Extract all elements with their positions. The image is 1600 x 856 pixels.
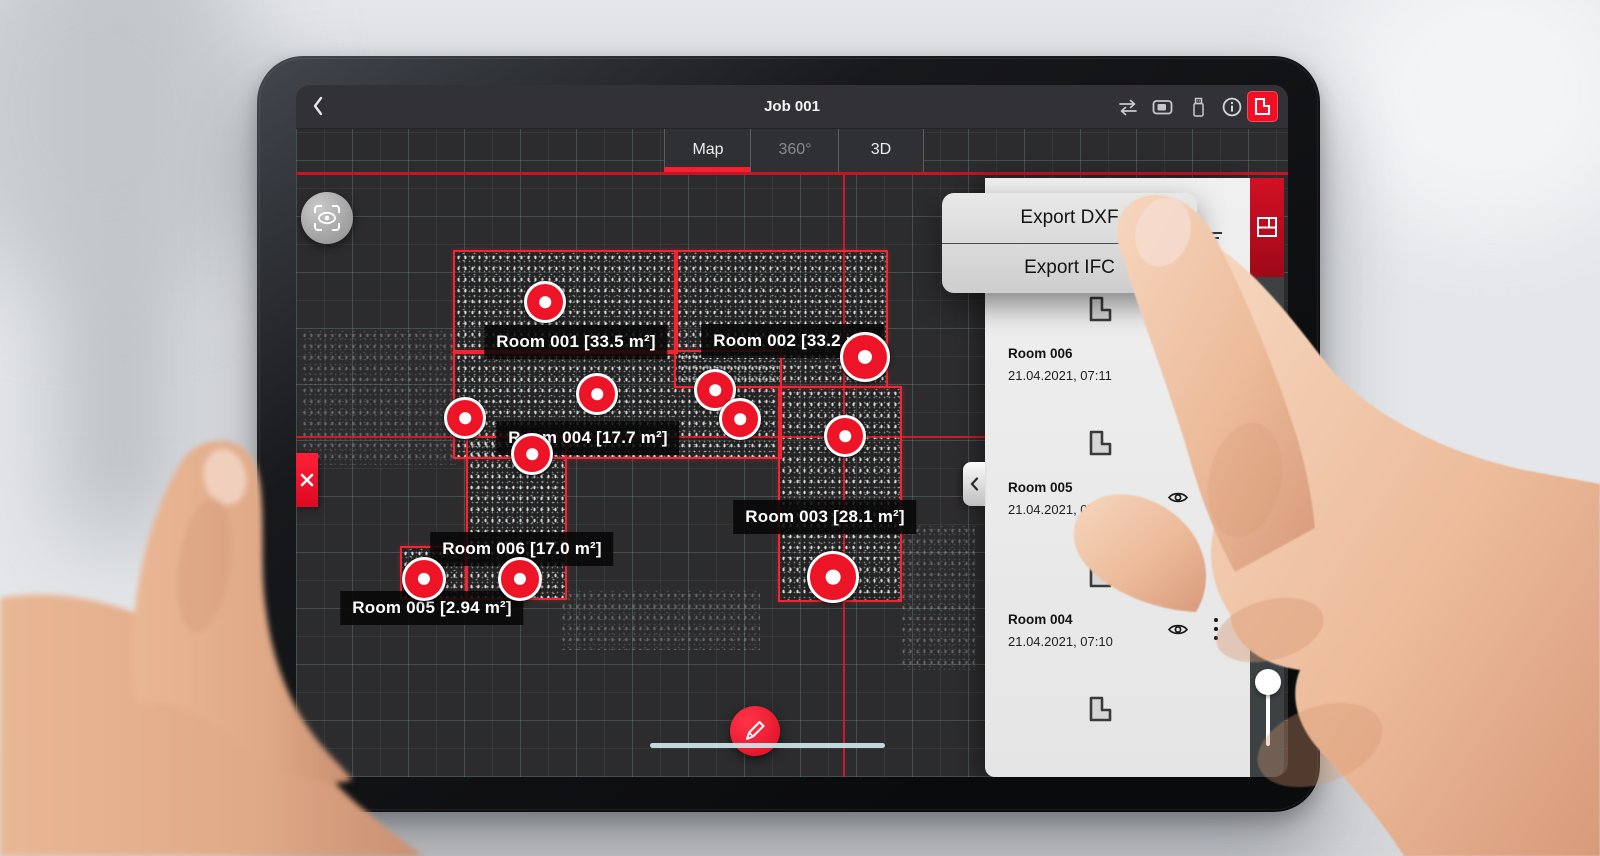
point-cloud-patch [560, 590, 760, 650]
scan-marker-2[interactable] [576, 373, 618, 415]
zoom-slider-handle[interactable] [1255, 669, 1281, 695]
scene: Room 001 [33.5 m²]Room 002 [33.2 m²]Room… [0, 0, 1600, 856]
view-visibility-button[interactable] [301, 192, 353, 244]
label-room-001: Room 001 [33.5 m²] [484, 325, 667, 359]
active-tool-highlight[interactable] [1250, 178, 1284, 277]
top-bar: Job 001 [296, 85, 1288, 129]
background-blur [0, 0, 280, 300]
visibility-eye-icon[interactable] [1167, 356, 1189, 371]
room-thumbnail-icon [1085, 694, 1115, 724]
export-menu: Export DXF Export IFC [942, 193, 1197, 293]
zoom-slider-track [1266, 694, 1270, 746]
right-tool-strip [1250, 178, 1284, 777]
menu-item-export-dxf[interactable]: Export DXF [942, 193, 1197, 243]
device-icon[interactable] [1150, 96, 1174, 118]
room-name: Room 004 [1008, 612, 1073, 627]
map-top-red-line [296, 172, 1288, 175]
tool-icon[interactable] [1258, 311, 1280, 331]
room-thumbnail-icon [1085, 560, 1115, 590]
sidebar-collapse-button[interactable] [963, 462, 985, 506]
edit-button[interactable] [730, 706, 780, 756]
scan-marker-1[interactable] [524, 281, 566, 323]
room-name: Room 005 [1008, 480, 1073, 495]
room-timestamp: 21.04.2021, 07:11 [1008, 368, 1112, 383]
point-cloud-patch [900, 525, 975, 670]
scan-marker-8[interactable] [840, 332, 890, 382]
room-list-item-room-004[interactable]: Room 00421.04.2021, 07:10 [985, 544, 1250, 678]
room-list-item-partial[interactable] [985, 678, 1250, 777]
info-icon[interactable] [1220, 96, 1244, 118]
active-tab-underline [664, 167, 750, 172]
tab-map[interactable]: Map [664, 128, 751, 172]
floorplan-icon [1252, 96, 1273, 117]
scan-marker-3[interactable] [444, 397, 486, 439]
room-list-item-room-005[interactable]: Room 00521.04.2021, 07:10 [985, 412, 1250, 546]
tab-360[interactable]: 360° [750, 128, 839, 172]
scan-marker-9[interactable] [807, 551, 859, 603]
pencil-icon [742, 718, 768, 744]
label-room-003: Room 003 [28.1 m²] [733, 500, 916, 534]
visibility-eye-icon[interactable] [1167, 490, 1189, 505]
floorplan-export-button[interactable] [1247, 91, 1278, 122]
room-timestamp: 21.04.2021, 07:10 [1008, 502, 1113, 517]
scan-marker-4[interactable] [511, 433, 553, 475]
sync-icon[interactable] [1116, 96, 1140, 118]
home-indicator[interactable] [650, 743, 885, 748]
room-thumbnail-icon [1085, 428, 1115, 458]
scan-marker-7[interactable] [824, 415, 866, 457]
visibility-eye-icon[interactable] [1167, 622, 1189, 637]
menu-item-export-ifc[interactable]: Export IFC [942, 243, 1197, 294]
scan-marker-6[interactable] [719, 398, 761, 440]
point-cloud-patch [301, 330, 456, 465]
sort-icon[interactable] [1207, 228, 1223, 238]
floorplan-tool-icon [1256, 216, 1278, 238]
usb-drive-icon[interactable] [1186, 96, 1210, 118]
close-selection-button[interactable] [296, 453, 318, 507]
scan-marker-11[interactable] [402, 557, 446, 601]
kebab-menu-icon[interactable] [1212, 352, 1220, 374]
close-icon [300, 473, 314, 487]
tab-3d[interactable]: 3D [838, 128, 924, 172]
background-blur [1330, 0, 1600, 240]
chevron-left-icon [970, 477, 979, 491]
app-screen: Room 001 [33.5 m²]Room 002 [33.2 m²]Room… [296, 85, 1288, 777]
room-timestamp: 21.04.2021, 07:10 [1008, 634, 1113, 649]
kebab-menu-icon[interactable] [1212, 618, 1220, 640]
room-list-item-room-006[interactable]: Room 00621.04.2021, 07:11 [985, 278, 1250, 412]
eye-focus-icon [310, 201, 344, 235]
room-name: Room 006 [1008, 346, 1073, 361]
kebab-menu-icon[interactable] [1212, 486, 1220, 508]
tablet-device: Room 001 [33.5 m²]Room 002 [33.2 m²]Room… [257, 56, 1320, 812]
scan-marker-10[interactable] [498, 557, 542, 601]
room-thumbnail-icon [1085, 294, 1115, 324]
